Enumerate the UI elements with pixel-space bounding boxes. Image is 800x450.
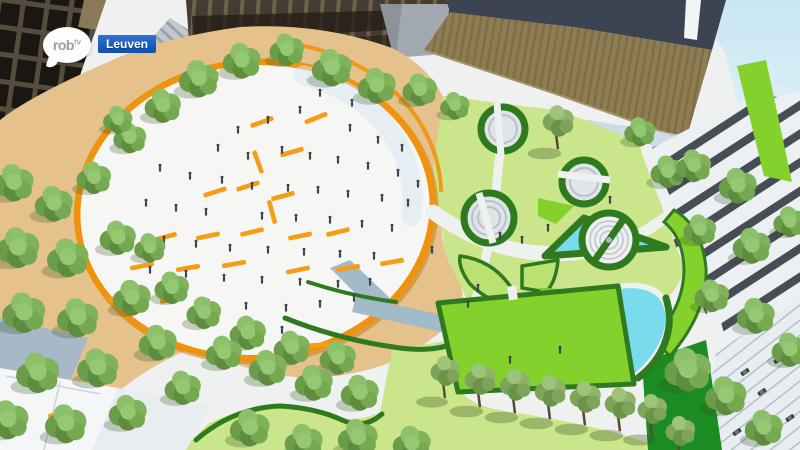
amphitheatre [582,213,636,267]
station-logo-sup: tv [74,37,81,46]
circular-planter [481,103,525,155]
tv-frame: robtv Leuven [0,0,800,450]
terraced-planter [464,193,514,243]
circular-planter [558,160,610,204]
location-badge: Leuven [98,35,156,53]
aerial-park-rendering [0,0,800,450]
station-logo: robtv [43,27,91,63]
station-logo-text: robtv [53,38,81,52]
location-badge-label: Leuven [106,37,148,51]
